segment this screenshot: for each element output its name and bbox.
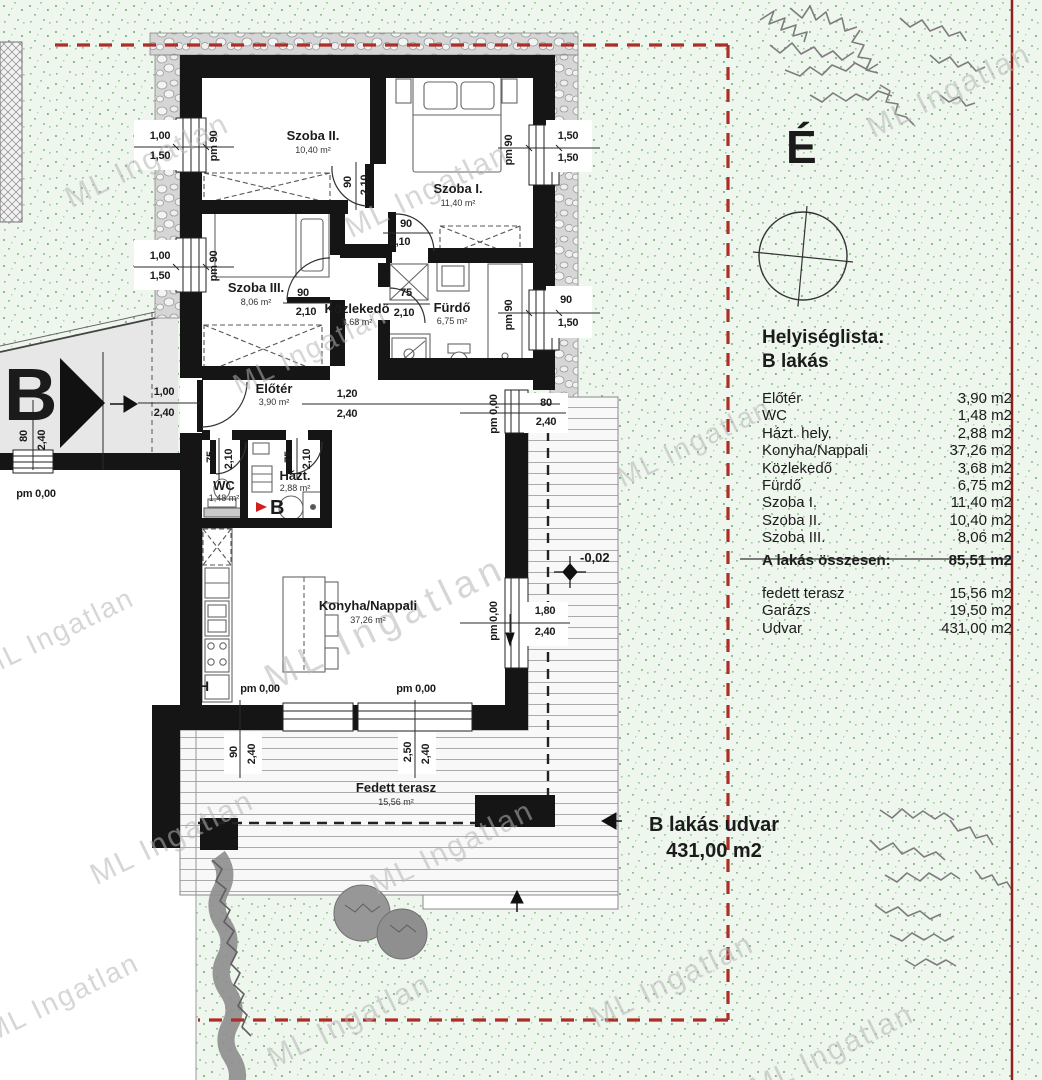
dim-label: 2,10 [301,449,313,470]
row-value: 8,06 m2 [958,529,1012,546]
dim-label: pm 0,00 [240,683,280,695]
room-area-szoba2: 10,40 m² [295,145,331,155]
room-area-eloter: 3,90 m² [259,397,290,407]
dim-label: 2,40 [337,408,358,420]
dim-label: 2,40 [420,744,432,765]
dim-label: 1,50 [150,270,171,282]
dim-label: 1,50 [558,317,579,329]
row-value: 431,00 m2 [941,620,1012,637]
dim-label: 2,50 [402,742,414,763]
room-label-szoba3: Szoba III. [228,280,284,295]
dim-label: 2,40 [535,626,556,638]
row-value: 10,40 m2 [949,512,1012,529]
dim-label: 1,20 [337,388,358,400]
dim-label: 1,80 [535,605,556,617]
level-label: -0,02 [580,550,610,565]
list-subtitle: B lakás [762,350,1012,374]
dim-label: 1,50 [558,152,579,164]
dim-label: pm 90 [208,131,220,162]
row-value: 2,88 m2 [958,425,1012,442]
room-area-hazt: 2,88 m² [280,483,311,493]
row-label: Szoba II. [762,512,821,529]
yard-label: B lakás udvar [649,814,779,837]
room-list-panel: Helyiséglista: B lakás Előtér3,90 m2 WC1… [762,326,1012,637]
room-area-szoba3: 8,06 m² [241,297,272,307]
dim-label: 90 [342,176,354,188]
dim-label: pm 0,00 [488,601,500,641]
room-label-konyha: Konyha/Nappali [319,598,417,613]
row-label: Fürdő [762,477,801,494]
list-row: Közlekedő3,68 m2 [762,460,1012,477]
room-label-wc: WC [213,478,235,493]
dim-label: 1,00 [150,250,171,262]
list-row: Szoba III.8,06 m2 [762,529,1012,546]
entrance-b-letter: B [4,352,54,437]
neighbour-wall-hatch [0,42,22,222]
dim-label: 90 [228,746,240,758]
dim-label: pm 0,00 [16,488,56,500]
row-value: 6,75 m2 [958,477,1012,494]
room-label-furdo: Fürdő [434,300,471,315]
row-label: WC [762,407,787,424]
list-row: Házt. hely.2,88 m2 [762,425,1012,442]
dim-label: 90 [297,287,309,299]
row-value: 19,50 m2 [949,602,1012,619]
total-value: 85,51 m2 [949,552,1012,569]
row-label: Közlekedő [762,460,832,477]
dim-label: 2,10 [390,236,411,248]
room-area-terasz: 15,56 m² [378,797,414,807]
dim-label: 2,10 [223,449,235,470]
room-label-szoba1: Szoba I. [433,181,482,196]
dim-label: 2,10 [359,175,371,196]
room-label-kozlekedo: Közlekedő [324,301,389,316]
row-label: Előtér [762,390,801,407]
dim-label: pm 0,00 [488,394,500,434]
list-row: Udvar431,00 m2 [762,620,1012,637]
list-row: Konyha/Nappali37,26 m2 [762,442,1012,459]
list-total-row: A lakás összesen:85,51 m2 [762,552,1012,569]
row-label: fedett terasz [762,585,845,602]
room-area-furdo: 6,75 m² [437,316,468,326]
list-row: WC1,48 m2 [762,407,1012,424]
list-row: Fürdő6,75 m2 [762,477,1012,494]
row-label: Konyha/Nappali [762,442,868,459]
dim-label: 2,40 [246,744,258,765]
dim-label: 2,10 [394,307,415,319]
dim-label: 1,00 [154,386,175,398]
room-area-kozlekedo: 3,68 m² [342,317,373,327]
dim-label: 2,40 [536,416,557,428]
dim-label: 1,00 [150,130,171,142]
row-value: 3,90 m2 [958,390,1012,407]
row-value: 11,40 m2 [951,494,1012,511]
room-area-wc: 1,48 m² [209,493,240,503]
dim-label: pm 0,00 [396,683,436,695]
dim-label: 2,40 [154,407,175,419]
floor-plan-page: ML Ingatlan ML Ingatlan ML Ingatlan ML I… [0,0,1042,1080]
room-label-terasz: Fedett terasz [356,780,436,795]
room-area-szoba1: 11,40 m² [441,198,476,208]
north-letter: É [786,120,817,174]
h-marker: H [199,678,209,694]
row-value: 15,56 m2 [949,585,1012,602]
row-label: Szoba III. [762,529,825,546]
dim-label: 80 [540,397,552,409]
list-title: Helyiséglista: [762,326,1012,350]
list-extra-rows: fedett terasz15,56 m2 Garázs19,50 m2 Udv… [762,585,1012,637]
house-b-marker: B [270,497,284,520]
list-row: Előtér3,90 m2 [762,390,1012,407]
room-area-konyha: 37,26 m² [350,615,386,625]
row-label: Garázs [762,602,810,619]
dim-label: 75 [205,451,217,463]
list-row: fedett terasz15,56 m2 [762,585,1012,602]
dim-label: 75 [400,287,412,299]
list-rows: Előtér3,90 m2 WC1,48 m2 Házt. hely.2,88 … [762,390,1012,569]
row-value: 37,26 m2 [949,442,1012,459]
room-label-eloter: Előtér [256,381,293,396]
dim-label: 90 [400,218,412,230]
dim-label: 75 [283,451,295,463]
dim-label: 90 [560,294,572,306]
dim-label: pm 90 [503,135,515,166]
dim-label: 1,50 [150,150,171,162]
yard-area: 431,00 m2 [666,840,762,863]
room-label-szoba2: Szoba II. [287,128,340,143]
row-label: Udvar [762,620,802,637]
dim-label: 1,50 [558,130,579,142]
row-label: Házt. hely. [762,425,832,442]
room-label-hazt: Házt. [279,468,310,483]
dim-label: pm 90 [503,300,515,331]
row-value: 1,48 m2 [958,407,1012,424]
list-row: Szoba II.10,40 m2 [762,512,1012,529]
dim-label: 2,10 [296,306,317,318]
dim-label: pm 90 [208,251,220,282]
row-label: Szoba I. [762,494,817,511]
total-label: A lakás összesen: [762,552,891,569]
list-row: Garázs19,50 m2 [762,602,1012,619]
list-row: Szoba I.11,40 m2 [762,494,1012,511]
row-value: 3,68 m2 [958,460,1012,477]
